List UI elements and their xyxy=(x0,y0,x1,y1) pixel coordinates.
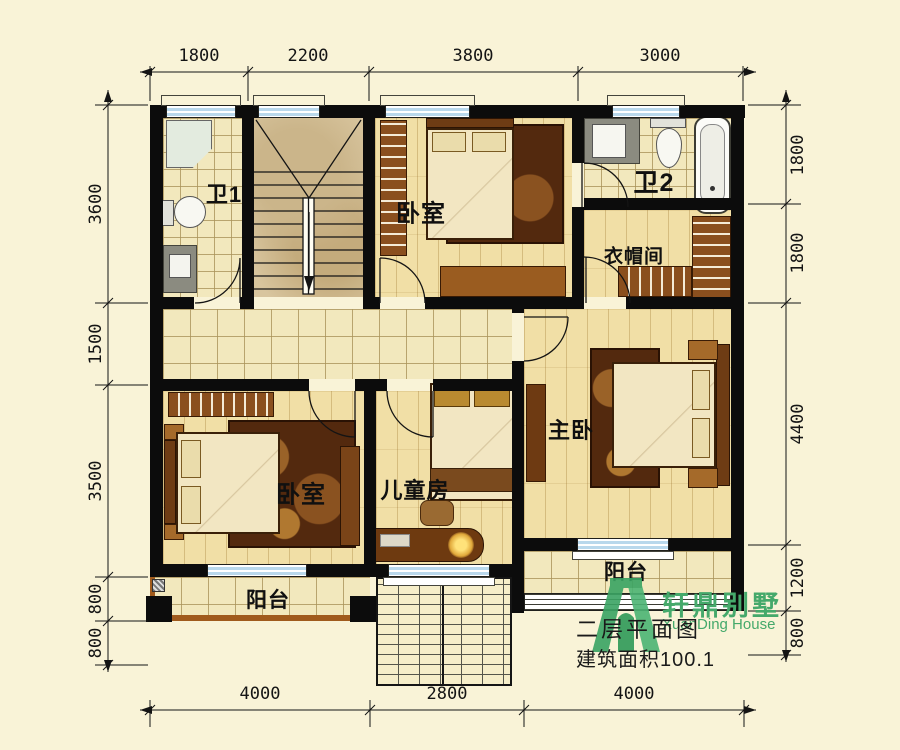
window-bath1 xyxy=(166,105,236,118)
window-bath2 xyxy=(612,105,680,118)
dresser-bedroom-left xyxy=(340,446,360,546)
dim-top-3: 3800 xyxy=(453,46,494,66)
bathtub-inner xyxy=(700,124,725,204)
dim-left-3: 3500 xyxy=(86,461,106,502)
wardrobe-bedroom-top xyxy=(380,120,407,256)
wall xyxy=(363,297,380,309)
column xyxy=(146,596,172,622)
wall xyxy=(731,105,744,611)
room-label-kids: 儿童房 xyxy=(380,473,449,505)
wall xyxy=(512,361,524,613)
window-sill xyxy=(383,577,495,586)
wall xyxy=(242,105,254,309)
nightstand xyxy=(688,468,718,488)
balcony-hatch-mark xyxy=(152,579,165,592)
stairwell-floor xyxy=(254,118,363,297)
wardrobe-cloak-right xyxy=(692,216,731,300)
window-bedroom-top xyxy=(385,105,470,118)
plan-area-text: 建筑面积100.1 xyxy=(576,643,715,672)
desk-lamp xyxy=(448,532,474,558)
dim-bottom-1: 4000 xyxy=(240,684,281,704)
porch-center-line xyxy=(442,577,444,686)
room-label-bedroom-top: 卧室 xyxy=(396,194,446,229)
pillow xyxy=(181,486,201,524)
bed-master-headboard xyxy=(716,344,730,486)
wall xyxy=(150,379,309,391)
toilet1-tank xyxy=(162,200,174,226)
wall xyxy=(584,198,744,210)
wall xyxy=(572,105,584,163)
hall-floor xyxy=(163,309,512,379)
wall xyxy=(626,297,744,309)
dim-left-2: 1500 xyxy=(86,324,106,365)
pillow xyxy=(472,132,506,152)
room-label-master: 主卧 xyxy=(548,413,594,445)
dim-right-3: 4400 xyxy=(788,404,808,445)
bed-left-headboard xyxy=(164,440,176,524)
toilet2-tank xyxy=(650,118,686,128)
wall xyxy=(240,297,254,309)
room-label-bath2: 卫2 xyxy=(634,163,675,199)
nightstand xyxy=(688,340,718,360)
dim-right-2: 1800 xyxy=(788,233,808,274)
room-label-bedroom-left: 卧室 xyxy=(276,475,326,510)
window-kids xyxy=(388,564,490,577)
bed-top-headboard xyxy=(426,118,514,128)
plan-title: 二层平面图 xyxy=(576,612,701,644)
wardrobe-bedroom-left xyxy=(168,392,274,417)
dim-left-4: 800 xyxy=(86,584,106,615)
wall xyxy=(363,105,375,309)
sink1-basin xyxy=(169,254,191,278)
dim-top-2: 2200 xyxy=(288,46,329,66)
pillow xyxy=(692,418,710,458)
dim-right-5: 800 xyxy=(788,618,808,649)
room-label-cloakroom: 衣帽间 xyxy=(604,242,664,269)
dim-bottom-3: 4000 xyxy=(614,684,655,704)
window-master xyxy=(577,538,669,551)
sink2-basin xyxy=(592,124,626,158)
pillow xyxy=(432,132,466,152)
dim-top-4: 3000 xyxy=(640,46,681,66)
wall xyxy=(572,207,584,309)
window-bedroom-left xyxy=(207,564,307,577)
wall xyxy=(433,379,512,391)
wall xyxy=(150,297,194,309)
room-label-balcony-left: 阳台 xyxy=(246,584,290,614)
toilet1-bowl xyxy=(174,196,206,228)
wall xyxy=(364,379,376,577)
wall xyxy=(512,309,524,313)
dim-right-1: 1800 xyxy=(788,135,808,176)
dim-left-5: 800 xyxy=(86,628,106,659)
pillow xyxy=(692,370,710,410)
dim-right-4: 1200 xyxy=(788,558,808,599)
balcony-left-rail xyxy=(150,615,374,621)
wardrobe-cloak-bottom xyxy=(618,266,692,297)
dim-bottom-2: 2800 xyxy=(427,684,468,704)
dim-left-1: 3600 xyxy=(86,184,106,225)
wardrobe-master xyxy=(526,384,546,482)
window-stairs xyxy=(258,105,320,118)
porch-roof-hatch xyxy=(376,577,512,686)
column xyxy=(350,596,376,622)
dim-top-1: 1800 xyxy=(179,46,220,66)
bench-bedroom-top xyxy=(440,266,566,297)
floor-plan-canvas: 1800 2200 3800 3000 3600 1500 3500 800 8… xyxy=(0,0,900,750)
bathtub-drain xyxy=(710,186,715,191)
desk-paper xyxy=(380,534,410,547)
room-label-bath1: 卫1 xyxy=(206,177,242,209)
wall xyxy=(150,105,163,577)
wall xyxy=(425,297,572,309)
pillow xyxy=(181,440,201,478)
